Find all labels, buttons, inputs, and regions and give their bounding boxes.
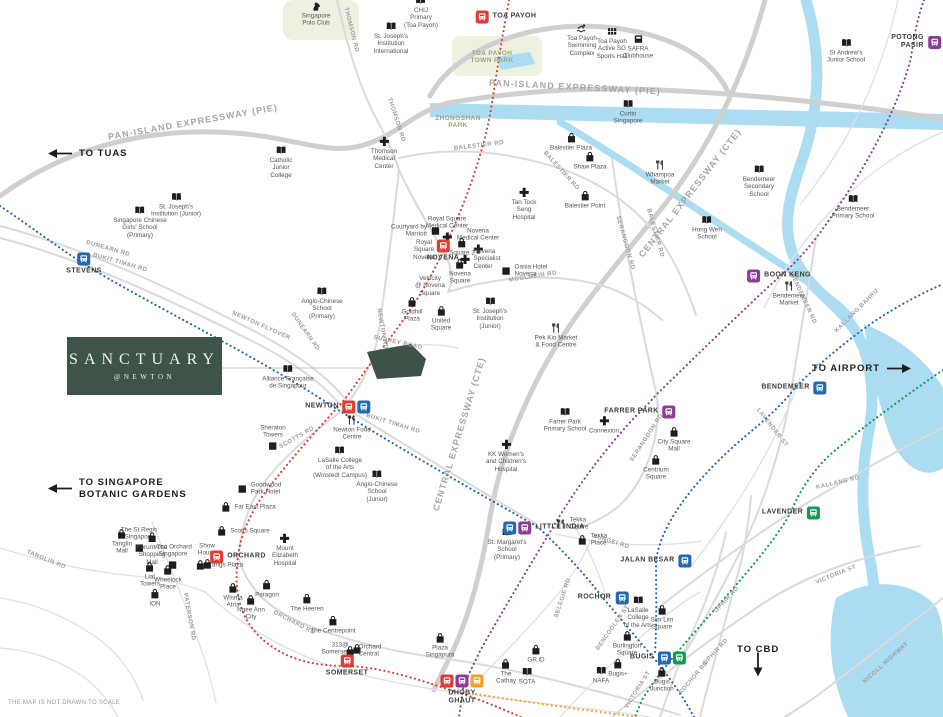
train-station-icon-dt — [658, 652, 671, 665]
train-station-icon-dt — [814, 382, 827, 395]
mall-icon — [149, 588, 160, 599]
poi-label: The Cathay — [496, 671, 516, 686]
poi-velocity-novena-square: Velocity @ Novena Square — [415, 275, 445, 297]
direction-to-tuas: TO TUAS — [48, 148, 128, 160]
station-label: LAVENDER — [762, 509, 803, 517]
poi-label: Anglo-Chinese School (Primary) — [301, 298, 342, 320]
mall-icon — [436, 306, 447, 317]
train-station-icon-ew — [673, 652, 686, 665]
poi-courtyard-by-marriott: Courtyard by Marriott — [391, 224, 441, 239]
school-icon — [623, 99, 634, 110]
poi-shaw-plaza: Shaw Plaza — [573, 151, 606, 170]
poi-label: Toa Payoh Swimming Complex — [567, 35, 597, 57]
poi-label: Singapore Polo Club — [302, 13, 331, 28]
poi-bendemeer-primary-school: Bendemeer Primary School — [832, 194, 875, 221]
school-icon — [484, 296, 495, 307]
poi-farrer-park-primary-school: Farrer Park Primary School — [544, 407, 587, 434]
sports-icon — [606, 26, 617, 37]
station-line-icons — [747, 270, 760, 283]
poi-kk-women-s-and-children-s-hospital: KK Women's and Children's Hospital — [486, 439, 526, 473]
mall-icon — [566, 132, 577, 143]
station-label: SOMERSET — [326, 669, 368, 677]
train-station-icon-ne — [518, 522, 531, 535]
train-station-icon-ns — [210, 551, 223, 564]
poi-alliance-fran-aise-de-singapour: Alliance Française de Singapour — [262, 364, 313, 391]
poi-anglo-chinese-school-primary: Anglo-Chinese School (Primary) — [301, 286, 342, 320]
poi-label: Courtyard by Marriott — [391, 224, 427, 239]
mall-icon — [117, 529, 128, 540]
school-icon — [415, 0, 426, 6]
station-line-icons — [807, 507, 820, 520]
poi-ngee-ann-city: Ngee Ann City — [237, 595, 265, 622]
mall-icon — [220, 502, 231, 513]
hospital-icon — [379, 136, 390, 147]
station-stevens: STEVENS — [66, 252, 101, 275]
station-line-icons — [663, 406, 676, 419]
poi-label: United Square — [431, 318, 451, 333]
station-bendemeer: BENDEMEER — [761, 382, 826, 395]
project-subtitle: @NEWTON — [114, 373, 175, 381]
train-station-icon-dt — [615, 592, 628, 605]
mall-icon — [650, 455, 661, 466]
poi-label: Goldhill Plaza — [402, 309, 423, 324]
station-rochor: ROCHOR — [578, 592, 629, 605]
station-boon-keng: BOON KENG — [747, 270, 811, 283]
school-icon — [135, 205, 146, 216]
location-map: TOA PAYOH TOWN PARKZHONGSHAN PARK PAN-IS… — [0, 0, 943, 717]
poi-gr-id: GR.iD — [527, 644, 544, 663]
poi-label: Bugis+ — [608, 670, 627, 677]
train-station-icon-dt — [503, 522, 516, 535]
train-station-icon-ns — [476, 11, 489, 24]
poi-label: Scotts Square — [230, 527, 270, 534]
poi-catholic-junior-college: Catholic Junior College — [270, 145, 293, 179]
poi-balestier-plaza: Balestier Plaza — [550, 132, 592, 151]
train-station-icon-ne — [456, 674, 469, 687]
poi-label: Velocity @ Novena Square — [415, 275, 445, 297]
train-station-icon-ns — [441, 674, 454, 687]
poi-label: Plaza Singapura — [426, 645, 455, 660]
park-label-toa-payoh-town-park: TOA PAYOH TOWN PARK — [470, 50, 513, 64]
kallang-basin — [831, 584, 943, 717]
train-station-icon-ns — [340, 654, 353, 667]
station-line-icons — [658, 652, 686, 665]
poi-label: Catholic Junior College — [270, 157, 293, 179]
poi-label: Ngee Ann City — [237, 607, 265, 622]
project-logo: SANCTUARY @NEWTON — [67, 337, 222, 395]
poi-plaza-singapura: Plaza Singapura — [426, 633, 455, 660]
station-farrer-park: FARRER PARK — [604, 406, 675, 419]
station-somerset: SOMERSET — [326, 654, 368, 677]
station-orchard: ORCHARD — [210, 551, 266, 564]
mall-icon — [245, 595, 256, 606]
poi-label: Tekka Place — [591, 533, 607, 548]
station-label: FARRER PARK — [604, 408, 658, 416]
poi-balestier-point: Balestier Point — [565, 190, 606, 209]
station-label: BUGIS — [630, 654, 654, 662]
station-line-icons — [928, 36, 941, 49]
poi-label: Connexion — [589, 427, 619, 434]
station-label: ROCHOR — [578, 594, 612, 602]
river-valley-rd — [0, 648, 118, 717]
school-icon — [276, 145, 287, 156]
train-station-icon-ne — [663, 406, 676, 419]
poi-label: Alliance Française de Singapour — [262, 376, 313, 391]
poi-label: Thomson Medical Center — [371, 148, 397, 170]
mall-icon — [163, 565, 174, 576]
poi-label: CHIJ Primary (Toa Payoh) — [404, 7, 438, 29]
poi-label: Curtin Singapore — [614, 111, 643, 126]
station-line-icons — [503, 522, 531, 535]
mall-icon — [584, 151, 595, 162]
poi-label: SAFRA Clubhouse — [623, 46, 653, 61]
poi-centrium-square: Centrium Square — [643, 455, 669, 482]
poi-thomson-medical-center: Thomson Medical Center — [371, 136, 397, 170]
train-station-icon-dt — [77, 252, 90, 265]
station-bugis: BUGIS — [630, 652, 686, 665]
arrow-down-icon — [754, 652, 763, 676]
park-label-zhongshan-park: ZHONGSHAN PARK — [435, 115, 481, 129]
poi-sim-lim-square: Sim Lim Square — [651, 605, 674, 632]
poi-label: Tanglin Mall — [112, 541, 132, 556]
mall-icon — [657, 667, 668, 678]
train-station-icon-ne — [747, 270, 760, 283]
mall-icon — [579, 190, 590, 201]
station-line-icons — [476, 11, 489, 24]
school-icon — [385, 21, 396, 32]
station-label: ORCHARD — [227, 553, 266, 561]
food-icon — [654, 160, 665, 171]
station-label: DHOBY GHAUT — [448, 689, 475, 705]
poi-label: LaSalle College of the Arts — [624, 607, 652, 629]
poi-label: St Andrew's Junior School — [827, 50, 865, 65]
school-icon — [632, 595, 643, 606]
station-line-icons — [679, 555, 692, 568]
poi-label: KK Women's and Children's Hospital — [486, 451, 526, 473]
poi-hong-wen-school: Hong Wen School — [692, 215, 722, 242]
mall-icon — [500, 659, 511, 670]
station-line-icons — [441, 674, 484, 687]
poi-curtin-singapore: Curtin Singapore — [614, 99, 643, 126]
direction-to-airport: TO AIRPORT — [812, 363, 911, 375]
hotel-icon — [430, 226, 441, 237]
station-line-icons — [436, 239, 449, 252]
hospital-icon — [519, 187, 530, 198]
direction-to-singapore-botanic-gardens: TO SINGAPORE BOTANIC GARDENS — [48, 477, 187, 501]
mall-icon — [228, 583, 239, 594]
poi-label: Anglo-Chinese School (Junior) — [356, 481, 397, 503]
poi-label: Tan Tock Seng Hospital — [512, 199, 537, 221]
poi-novena-square: Novena Square — [449, 259, 471, 286]
station-line-icons — [210, 551, 223, 564]
station-line-icons — [77, 252, 90, 265]
poi-scotts-square: Scotts Square — [216, 526, 270, 537]
station-label: TOA PAYOH — [493, 13, 537, 21]
station-novena: NOVENA — [427, 239, 459, 262]
station-toa-payoh: TOA PAYOH — [476, 11, 537, 24]
station-label: NOVENA — [427, 254, 459, 262]
station-line-icons — [615, 592, 628, 605]
arrow-right-icon — [887, 364, 911, 373]
poi-bendemeer-secondary-school: Bendemeer Secondary School — [743, 164, 776, 198]
poi-label: Goodwood Park Hotel — [251, 482, 281, 497]
station-newton: NEWTON — [305, 401, 370, 414]
poi-label: Whampoa Market — [646, 172, 675, 187]
mall-icon — [657, 605, 668, 616]
poi-nafa: NAFA — [593, 665, 609, 684]
poi-sheraton-towers: Sheraton Towers — [260, 425, 286, 452]
poi-bendemeer-market: Bendemeer Market — [773, 281, 806, 308]
direction-label: TO AIRPORT — [812, 363, 880, 375]
poi-city-square-mall: City Square Mall — [658, 427, 691, 454]
poi-oasia-hotel-novena: Oasia Hotel Novena — [501, 264, 548, 279]
station-label: STEVENS — [66, 267, 101, 275]
poi-mount-elizabeth-hospital: Mount Elizabeth Hospital — [272, 533, 298, 567]
poi-label: Shaw Plaza — [573, 163, 606, 170]
mall-icon — [435, 633, 446, 644]
hospital-icon — [501, 439, 512, 450]
ophir-rd — [700, 496, 751, 717]
station-little-india: LITTLE INDIA — [503, 522, 585, 535]
project-title: SANCTUARY — [69, 351, 220, 369]
poi-safra-clubhouse: SAFRA Clubhouse — [623, 34, 653, 61]
food-icon — [346, 415, 357, 426]
hotel-icon — [268, 440, 279, 451]
poi-whampoa-market: Whampoa Market — [646, 160, 675, 187]
school-icon — [372, 469, 383, 480]
school-icon — [841, 38, 852, 49]
poi-chij-primary-toa-payoh: CHIJ Primary (Toa Payoh) — [404, 0, 438, 29]
poi-label: St. Margaret's School (Primary) — [488, 539, 527, 561]
poi-label: Novena Square — [449, 271, 471, 286]
station-line-icons — [340, 654, 353, 667]
station-label: JALAN BESAR — [620, 557, 674, 565]
poi-label: NAFA — [593, 677, 609, 684]
poi-label: Bendemeer Market — [773, 293, 806, 308]
poi-label: Sim Lim Square — [651, 617, 674, 632]
train-station-icon-ne — [928, 36, 941, 49]
station-jalan-besar: JALAN BESAR — [620, 555, 691, 568]
swim-icon — [576, 23, 587, 34]
poi-newton-food-centre: Newton Food Centre — [333, 415, 370, 442]
horse-icon — [311, 1, 322, 12]
poi-label: SOTA — [519, 678, 536, 685]
poi-anglo-chinese-school-junior: Anglo-Chinese School (Junior) — [356, 469, 397, 503]
school-icon — [170, 192, 181, 203]
mall-icon — [195, 560, 206, 571]
mall-icon — [216, 526, 227, 537]
mall-icon — [577, 535, 588, 546]
school-icon — [317, 286, 328, 297]
mall-icon — [531, 644, 542, 655]
mall-icon — [407, 297, 418, 308]
train-station-icon-dt — [358, 401, 371, 414]
station-line-icons — [343, 401, 371, 414]
arrow-left-icon — [48, 484, 72, 493]
mall-icon — [301, 593, 312, 604]
poi-label: Far East Plaza — [234, 503, 275, 510]
poi-label: City Square Mall — [658, 439, 691, 454]
train-station-icon-ns — [343, 401, 356, 414]
mall-icon — [328, 615, 339, 626]
poi-singapore-polo-club: Singapore Polo Club — [302, 1, 331, 28]
station-potong-pasir: POTONG PASIR — [891, 34, 941, 50]
poi-goodwood-park-hotel: Goodwood Park Hotel — [237, 482, 281, 497]
poi-singapore-chinese-girls-school-primary: Singapore Chinese Girls' School (Primary… — [113, 205, 167, 239]
poi-label: The Heeren — [290, 605, 323, 612]
school-icon — [595, 665, 606, 676]
poi-label: Mount Elizabeth Hospital — [272, 545, 298, 567]
poi-label: The Centrepoint — [310, 627, 355, 634]
mall-icon — [669, 427, 680, 438]
poi-tekka-place: Tekka Place — [577, 533, 607, 548]
map-disclaimer: THE MAP IS NOT DRAWN TO SCALE — [8, 700, 120, 706]
direction-to-cbd: TO CBD — [737, 644, 779, 669]
station-label: BENDEMEER — [761, 384, 809, 392]
station-label: BOON KENG — [764, 272, 811, 280]
poi-label: Sheraton Towers — [260, 425, 286, 440]
poi-tanglin-mall: Tanglin Mall — [112, 529, 132, 556]
poi-label: Centrium Square — [643, 467, 669, 482]
poi-label: Farrer Park Primary School — [544, 419, 587, 434]
school-icon — [559, 407, 570, 418]
poi-bugis-junction: Bugis Junction — [650, 667, 673, 694]
poi-label: Hong Wen School — [692, 227, 722, 242]
poi-label: St. Joseph's Institution (Junior) — [473, 308, 507, 330]
station-label: LITTLE INDIA — [535, 524, 585, 532]
mall-icon — [262, 579, 273, 590]
poi-label: St. Joseph's Institution International — [374, 33, 409, 55]
station-label: POTONG PASIR — [891, 34, 924, 50]
poi-goldhill-plaza: Goldhill Plaza — [402, 297, 423, 324]
train-station-icon-dt — [679, 555, 692, 568]
poi-label: Bendemeer Primary School — [832, 206, 875, 221]
poi-toa-payoh-swimming-complex: Toa Payoh Swimming Complex — [567, 23, 597, 57]
poi-label: GR.iD — [527, 656, 544, 663]
poi-label: Singapore Chinese Girls' School (Primary… — [113, 217, 167, 239]
hospital-icon — [280, 533, 291, 544]
poi-label: Bendemeer Secondary School — [743, 176, 776, 198]
poi-tan-tock-seng-hospital: Tan Tock Seng Hospital — [512, 187, 537, 221]
poi-st-andrew-s-junior-school: St Andrew's Junior School — [827, 38, 865, 65]
school-icon — [522, 666, 533, 677]
poi-the-heeren: The Heeren — [290, 593, 323, 612]
club-icon — [632, 34, 643, 45]
poi-label: Pek Kio Market & Food Centre — [535, 335, 578, 350]
central-expressway — [434, 0, 765, 690]
poi-far-east-plaza: Far East Plaza — [220, 502, 275, 513]
school-icon — [282, 364, 293, 375]
station-lavender: LAVENDER — [762, 507, 820, 520]
poi-sota: SOTA — [519, 666, 536, 685]
grange-rd — [0, 598, 143, 700]
poi-label: Oasia Hotel Novena — [515, 264, 548, 279]
school-icon — [701, 215, 712, 226]
poi-the-centrepoint: The Centrepoint — [310, 615, 355, 634]
school-icon — [334, 445, 345, 456]
train-station-icon-ns — [436, 239, 449, 252]
train-station-icon-ew — [807, 507, 820, 520]
poi-bugis: Bugis+ — [608, 658, 627, 677]
poi-st-joseph-s-institution-junior: St. Joseph's Institution (Junior) — [473, 296, 507, 330]
arrow-left-icon — [48, 149, 72, 158]
poi-label: Balestier Point — [565, 202, 606, 209]
poi-label: Novena Specialist Center — [474, 248, 501, 270]
station-label: NEWTON — [305, 403, 338, 411]
mall-icon — [621, 631, 632, 642]
direction-label: TO TUAS — [79, 148, 128, 160]
poi-st-joseph-s-institution-international: St. Joseph's Institution International — [374, 21, 409, 55]
mall-icon — [147, 532, 158, 543]
school-icon — [754, 164, 765, 175]
poi-label: ION — [149, 600, 160, 607]
poi-united-square: United Square — [431, 306, 451, 333]
mall-icon — [613, 658, 624, 669]
station-dhoby-ghaut: DHOBY GHAUT — [441, 674, 484, 705]
poi-pek-kio-market-food-centre: Pek Kio Market & Food Centre — [535, 323, 578, 350]
poi-label: Bugis Junction — [650, 679, 673, 694]
train-station-icon-cc — [471, 674, 484, 687]
food-icon — [550, 323, 561, 334]
direction-label: TO SINGAPORE BOTANIC GARDENS — [79, 477, 187, 501]
poi-label: Newton Food Centre — [333, 427, 370, 442]
hotel-icon — [237, 484, 248, 495]
poi-the-cathay: The Cathay — [496, 659, 516, 686]
school-icon — [847, 194, 858, 205]
station-line-icons — [814, 382, 827, 395]
hotel-icon — [501, 266, 512, 277]
poi-ion: ION — [149, 588, 160, 607]
